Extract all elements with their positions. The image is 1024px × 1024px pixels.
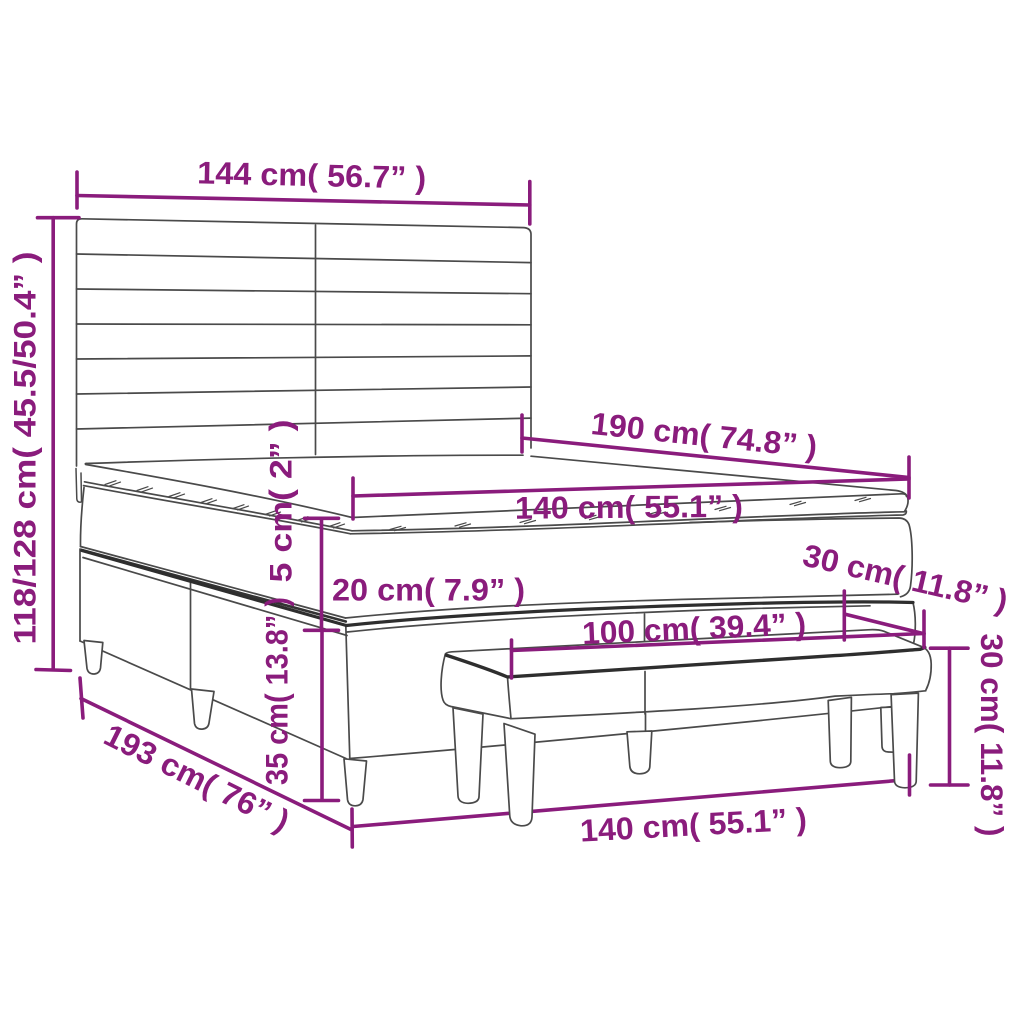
svg-text:140 cm( 55.1” ): 140 cm( 55.1” ) <box>579 800 808 848</box>
svg-text:5 cm( 2” ): 5 cm( 2” ) <box>263 420 299 583</box>
svg-text:35 cm( 13.8” ): 35 cm( 13.8” ) <box>259 597 295 785</box>
svg-text:118/128 cm( 45.5/50.4” ): 118/128 cm( 45.5/50.4” ) <box>7 252 43 645</box>
svg-text:140 cm( 55.1” ): 140 cm( 55.1” ) <box>515 488 743 526</box>
svg-text:144 cm( 56.7” ): 144 cm( 56.7” ) <box>197 154 427 195</box>
svg-text:30 cm( 11.8” ): 30 cm( 11.8” ) <box>974 634 1010 837</box>
svg-text:20 cm( 7.9” ): 20 cm( 7.9” ) <box>332 572 525 608</box>
